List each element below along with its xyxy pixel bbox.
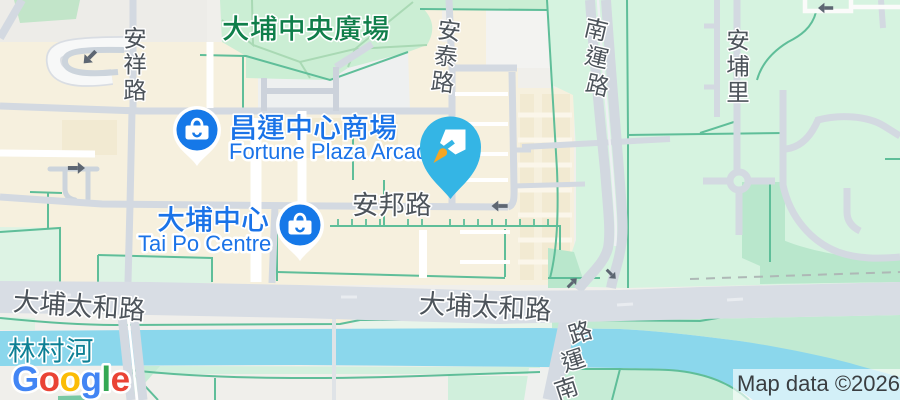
svg-text:Map data ©2026: Map data ©2026: [737, 371, 900, 396]
svg-text:Tai Po Centre: Tai Po Centre: [138, 231, 271, 256]
svg-text:Fortune Plaza Arcade: Fortune Plaza Arcade: [229, 139, 441, 164]
svg-text:Google: Google: [12, 360, 130, 399]
